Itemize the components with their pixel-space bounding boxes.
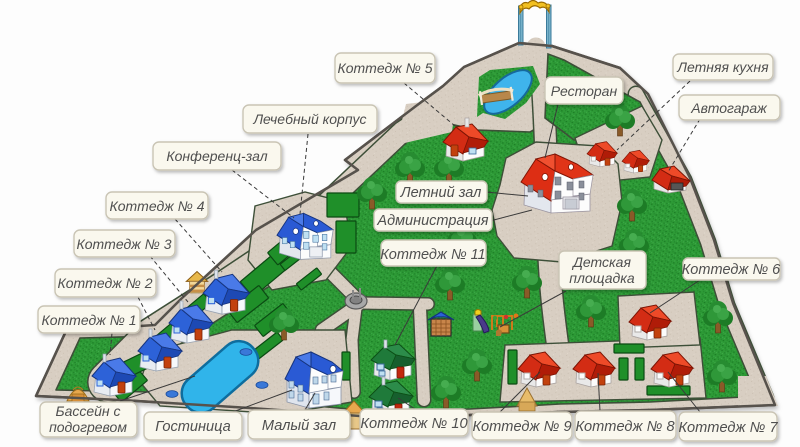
svg-text:Коттедж № 2: Коттедж № 2 [57,275,152,291]
svg-text:подогревом: подогревом [49,419,127,435]
svg-text:Коттедж № 6: Коттедж № 6 [682,262,781,278]
svg-text:Летняя кухня: Летняя кухня [676,59,769,75]
svg-text:Коттедж № 1: Коттедж № 1 [41,312,136,328]
svg-text:Коттедж № 3: Коттедж № 3 [76,236,171,252]
svg-text:Коттедж № 10: Коттедж № 10 [360,416,467,432]
svg-text:Лечебный корпус: Лечебный корпус [252,111,366,127]
svg-text:Коттедж № 9: Коттедж № 9 [472,419,571,435]
svg-text:Летний зал: Летний зал [400,185,482,201]
svg-text:Конференц-зал: Конференц-зал [166,148,267,164]
svg-text:Коттедж № 4: Коттедж № 4 [109,198,204,214]
svg-text:Ресторан: Ресторан [551,83,618,99]
svg-text:площадка: площадка [569,270,635,286]
svg-text:Малый зал: Малый зал [262,418,336,434]
svg-text:Коттедж № 5: Коттедж № 5 [337,60,432,76]
svg-text:Автогараж: Автогараж [690,100,768,116]
svg-text:Администрация: Администрация [376,213,488,229]
svg-text:Детская: Детская [571,254,631,270]
svg-text:Бассейн с: Бассейн с [55,403,120,419]
svg-text:Коттедж № 7: Коттедж № 7 [678,420,778,436]
svg-text:Гостиница: Гостиница [155,419,231,435]
svg-text:Коттедж № 11: Коттедж № 11 [380,247,485,263]
svg-text:Коттедж № 8: Коттедж № 8 [575,419,675,435]
